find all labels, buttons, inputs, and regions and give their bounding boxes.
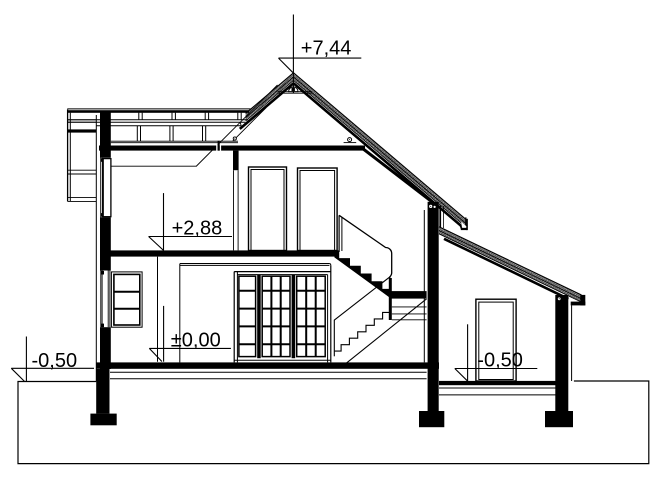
svg-text:-0,50: -0,50: [32, 350, 78, 372]
svg-text:+7,44: +7,44: [301, 38, 352, 60]
svg-text:±0,00: ±0,00: [171, 329, 221, 351]
svg-text:+2,88: +2,88: [172, 218, 223, 240]
svg-text:-0,50: -0,50: [477, 350, 523, 372]
